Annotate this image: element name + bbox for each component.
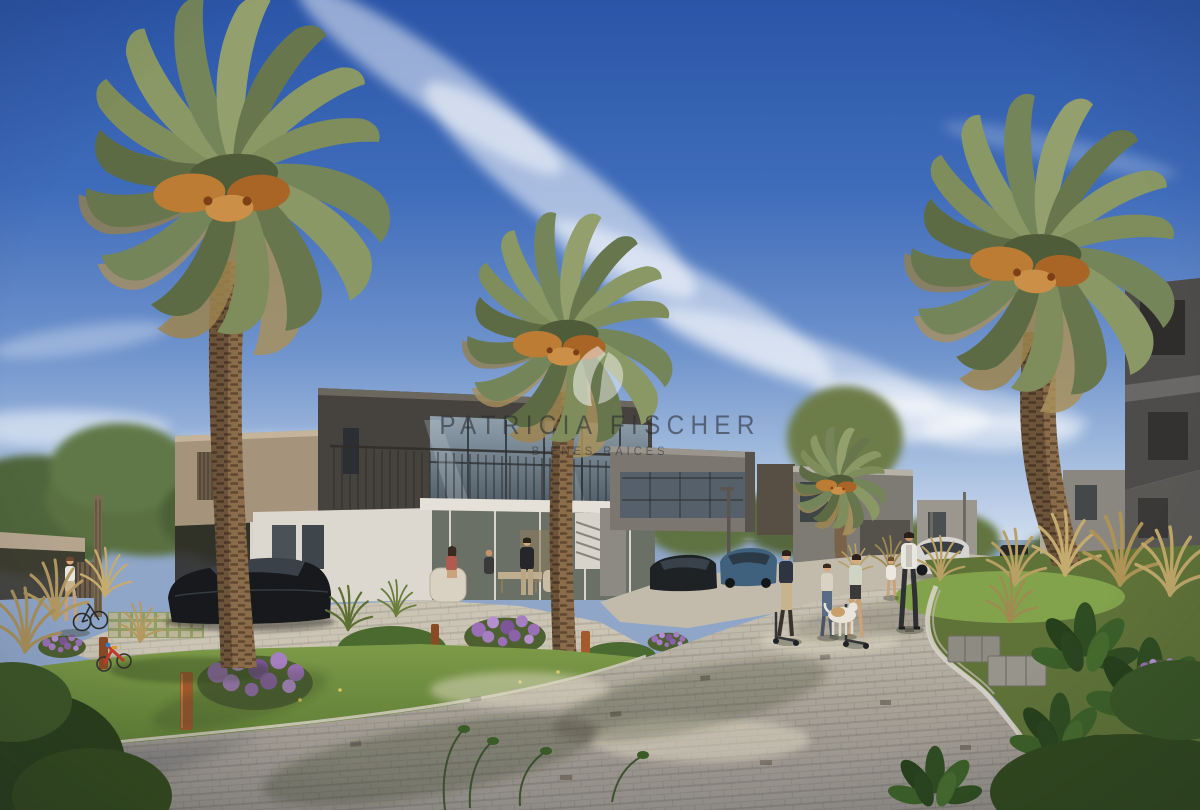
rendering-image: PATRICIA FISCHER BIENES RAICES [0,0,1200,810]
car-dark-2 [650,555,717,591]
fin-wall [757,464,795,535]
bollard-light [431,624,439,648]
villa-stairs [575,513,601,569]
bollard-light [99,637,108,669]
watermark-logo-icon [568,344,632,406]
car-blue [720,548,777,588]
